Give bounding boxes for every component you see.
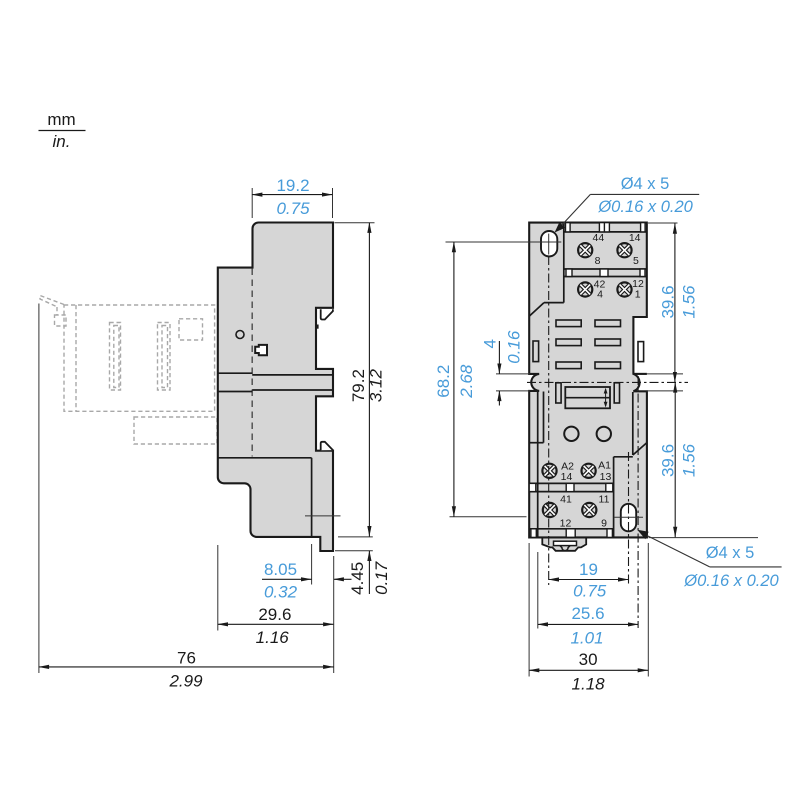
svg-text:0.75: 0.75: [573, 582, 607, 601]
svg-text:1.16: 1.16: [256, 628, 290, 647]
svg-text:mm: mm: [47, 110, 75, 129]
svg-text:Ø0.16 x 0.20: Ø0.16 x 0.20: [597, 198, 693, 216]
svg-text:41: 41: [560, 494, 572, 506]
svg-text:3.12: 3.12: [366, 369, 385, 403]
svg-text:Ø4 x 5: Ø4 x 5: [706, 544, 755, 562]
svg-text:1: 1: [635, 288, 641, 300]
svg-text:14: 14: [561, 471, 573, 483]
svg-text:2.99: 2.99: [168, 672, 203, 691]
svg-text:0.17: 0.17: [372, 561, 391, 595]
svg-text:1.56: 1.56: [679, 443, 698, 477]
svg-text:44: 44: [593, 232, 605, 244]
svg-text:0.16: 0.16: [505, 330, 524, 364]
svg-text:25.6: 25.6: [571, 604, 604, 623]
svg-text:11: 11: [599, 494, 610, 506]
svg-text:1.56: 1.56: [679, 285, 698, 319]
svg-text:39.6: 39.6: [658, 285, 677, 318]
svg-text:Ø0.16 x 0.20: Ø0.16 x 0.20: [683, 572, 779, 590]
svg-text:1.01: 1.01: [570, 629, 603, 648]
svg-text:2.68: 2.68: [457, 364, 476, 399]
svg-text:8.05: 8.05: [264, 560, 297, 579]
svg-text:9: 9: [601, 518, 607, 530]
svg-text:68.2: 68.2: [434, 365, 453, 398]
svg-text:A1: A1: [598, 460, 611, 472]
svg-text:76: 76: [177, 649, 196, 668]
svg-text:14: 14: [629, 232, 641, 244]
svg-text:39.6: 39.6: [658, 444, 677, 477]
svg-text:4: 4: [597, 289, 603, 301]
svg-text:19: 19: [579, 560, 598, 579]
svg-text:4: 4: [481, 339, 500, 348]
svg-text:1.18: 1.18: [572, 675, 606, 694]
svg-text:79.2: 79.2: [349, 369, 368, 402]
svg-text:8: 8: [595, 255, 601, 267]
svg-text:12: 12: [560, 518, 572, 530]
svg-text:Ø4 x 5: Ø4 x 5: [621, 175, 670, 193]
svg-text:0.75: 0.75: [276, 199, 310, 218]
svg-text:4.45: 4.45: [348, 562, 367, 595]
svg-text:29.6: 29.6: [258, 605, 291, 624]
svg-text:19.2: 19.2: [276, 176, 309, 195]
svg-text:30: 30: [579, 650, 598, 669]
svg-text:13: 13: [600, 471, 612, 483]
svg-text:0.32: 0.32: [264, 583, 298, 602]
svg-text:5: 5: [633, 255, 639, 267]
svg-text:in.: in.: [53, 132, 71, 151]
